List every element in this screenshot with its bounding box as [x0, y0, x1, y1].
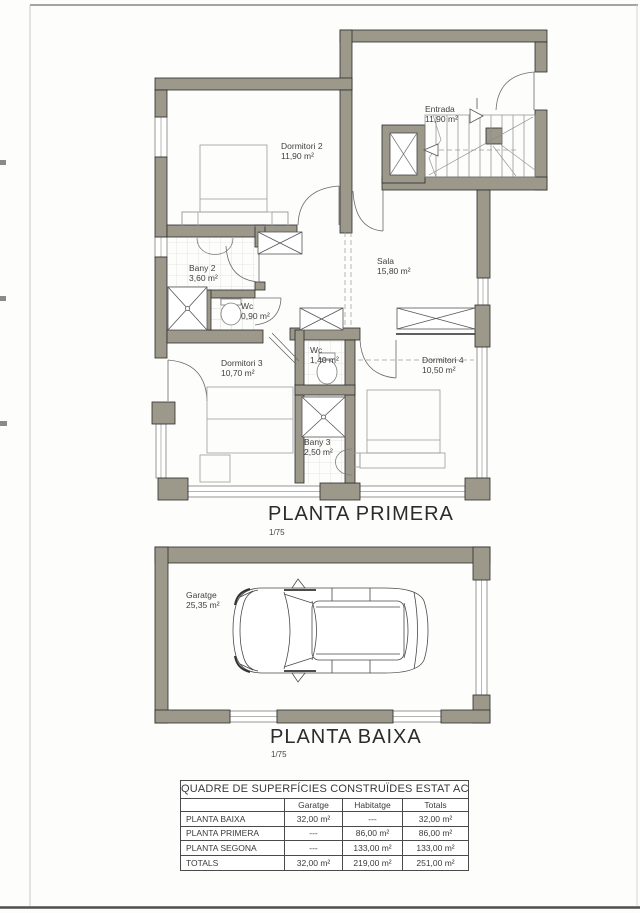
table-cell: 219,00 m² [343, 856, 403, 871]
room-label-bany-2: Bany 2 3,60 m² [189, 263, 218, 283]
elevator-shaft [390, 133, 417, 175]
plan-title-baixa: PLANTA BAIXA [270, 726, 422, 749]
room-label-entrada: Entrada 11,90 m² [425, 104, 458, 124]
entry-marker [470, 98, 483, 123]
stair-direction-arrow [424, 144, 438, 156]
table-cell: 86,00 m² [343, 827, 403, 842]
table-row-label: PLANTA SEGONA [181, 841, 285, 856]
table-cell: 133,00 m² [343, 841, 403, 856]
room-label-wc-petit: Wc 0,90 m² [241, 301, 270, 321]
table-cell: 251,00 m² [403, 856, 468, 871]
table-header-empty [181, 799, 285, 812]
table-cell: 32,00 m² [403, 812, 468, 827]
plan-scale-baixa: 1/75 [271, 750, 287, 759]
room-label-garatge: Garatge 25,35 m² [186, 590, 220, 610]
car-top-view [233, 579, 428, 682]
plan-scale-primera: 1/75 [269, 528, 285, 537]
table-title: QUADRE DE SUPERFÍCIES CONSTRUÏDES ESTAT … [181, 781, 468, 799]
room-label-dormitori-2: Dormitori 2 11,90 m² [281, 141, 323, 161]
staircase [424, 115, 535, 177]
table-row-label: PLANTA BAIXA [181, 812, 285, 827]
table-header-totals: Totals [403, 799, 468, 812]
table-cell: 133,00 m² [403, 841, 468, 856]
table-cell: --- [285, 827, 343, 842]
table-cell: --- [285, 841, 343, 856]
table-grid: Garatge Habitatge Totals PLANTA BAIXA 32… [181, 799, 468, 870]
room-label-dormitori-3: Dormitori 3 10,70 m² [221, 358, 263, 378]
room-label-dormitori-4: Dormitori 4 10,50 m² [422, 355, 464, 375]
scanned-floor-plan-page: Dormitori 2 11,90 m² Entrada 11,90 m² Sa… [0, 0, 640, 913]
table-cell: 32,00 m² [285, 812, 343, 827]
table-header-habitatge: Habitatge [343, 799, 403, 812]
car-mirror [292, 579, 305, 588]
plan-title-primera: PLANTA PRIMERA [268, 503, 454, 526]
table-row-label: TOTALS [181, 856, 285, 871]
table-cell: --- [343, 812, 403, 827]
room-label-bany-3: Bany 3 2,50 m² [304, 437, 333, 457]
table-cell: 86,00 m² [403, 827, 468, 842]
surface-table: QUADRE DE SUPERFÍCIES CONSTRUÏDES ESTAT … [180, 780, 469, 871]
car-mirror [292, 673, 305, 682]
room-label-sala: Sala 15,80 m² [377, 256, 411, 276]
room-label-wc: Wc 1,40 m² [310, 345, 339, 365]
table-cell: 32,00 m² [285, 856, 343, 871]
table-header-garatge: Garatge [285, 799, 343, 812]
table-row-label: PLANTA PRIMERA [181, 827, 285, 842]
